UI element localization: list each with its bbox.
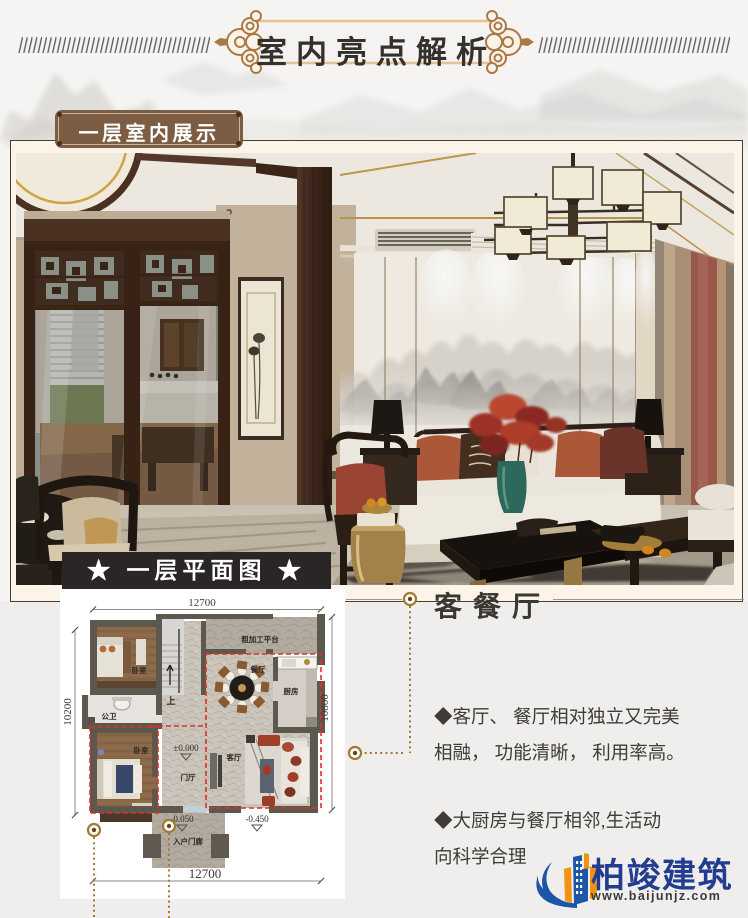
svg-text:www.baijunjz.com: www.baijunjz.com [590,889,721,903]
